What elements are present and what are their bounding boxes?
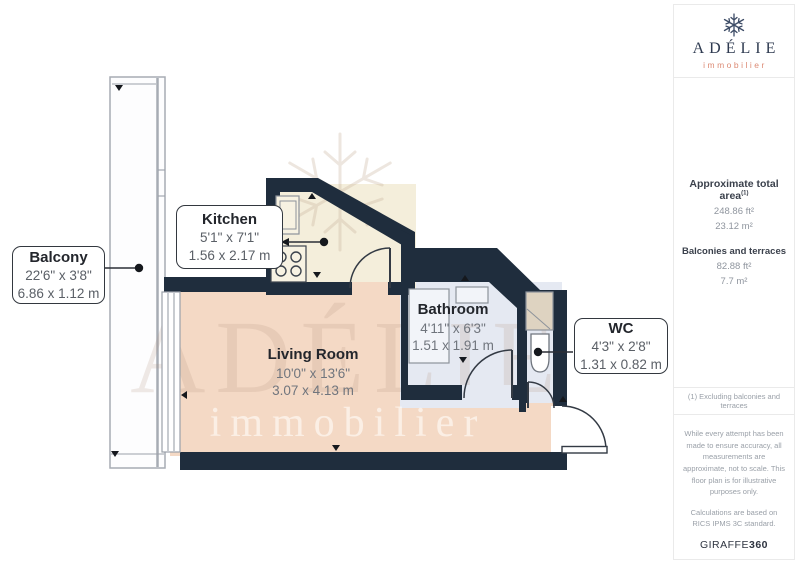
living-room-window bbox=[162, 292, 180, 452]
room-dim-imperial: 22'6" x 3'8" bbox=[13, 267, 104, 285]
info-sidebar: ADÉLIE immobilier Approximate total area… bbox=[673, 4, 795, 560]
room-dim-imperial: 4'3" x 2'8" bbox=[575, 338, 667, 356]
room-name: Kitchen bbox=[177, 210, 282, 230]
entrance-door bbox=[562, 406, 607, 453]
bathroom-sink-icon bbox=[456, 287, 488, 303]
bottom-wall bbox=[180, 452, 567, 470]
room-name: Balcony bbox=[13, 248, 104, 268]
balconies-m: 7.7 m² bbox=[721, 276, 748, 287]
room-dim-imperial: 5'1" x 7'1" bbox=[177, 229, 282, 247]
area-footnote: (1) Excluding balconies and terraces bbox=[674, 388, 794, 415]
room-dim-metric: 6.86 x 1.12 m bbox=[13, 285, 104, 303]
balconies-ft: 82.88 ft² bbox=[717, 261, 752, 272]
wc-counter-icon bbox=[526, 292, 553, 330]
agency-logo: ADÉLIE immobilier bbox=[674, 5, 794, 78]
logo-name: ADÉLIE bbox=[693, 40, 781, 58]
total-area-heading: Approximate total area(1) bbox=[674, 178, 794, 202]
standard-text: Calculations are based on RICS IPMS 3C s… bbox=[683, 507, 785, 530]
disclaimer-text: While every attempt has been made to ens… bbox=[683, 428, 785, 498]
giraffe360-logo: GIRAFFE360 bbox=[683, 539, 785, 551]
total-area-m: 23.12 m² bbox=[715, 221, 753, 232]
floorplan-page: ADÉLIE immobilier bbox=[0, 0, 800, 566]
room-dim-metric: 1.56 x 2.17 m bbox=[177, 247, 282, 265]
footnote-marker: (1) bbox=[741, 191, 748, 197]
room-name: WC bbox=[575, 319, 667, 339]
disclaimer-section: While every attempt has been made to ens… bbox=[674, 415, 794, 559]
wc-callout: WC 4'3" x 2'8" 1.31 x 0.82 m bbox=[574, 318, 668, 374]
kitchen-callout: Kitchen 5'1" x 7'1" 1.56 x 2.17 m bbox=[176, 205, 283, 269]
area-summary: Approximate total area(1) 248.86 ft² 23.… bbox=[674, 78, 794, 388]
logo-subtitle: immobilier bbox=[703, 60, 767, 70]
left-wall-stub bbox=[164, 277, 281, 292]
balconies-heading: Balconies and terraces bbox=[682, 246, 786, 257]
watermark-text-2: immobilier bbox=[210, 400, 487, 446]
room-dim-metric: 1.31 x 0.82 m bbox=[575, 356, 667, 374]
total-area-ft: 248.86 ft² bbox=[714, 206, 754, 217]
balcony-callout: Balcony 22'6" x 3'8" 6.86 x 1.12 m bbox=[12, 246, 105, 304]
shower-icon bbox=[409, 289, 449, 363]
logo-snowflake-icon bbox=[721, 12, 747, 38]
